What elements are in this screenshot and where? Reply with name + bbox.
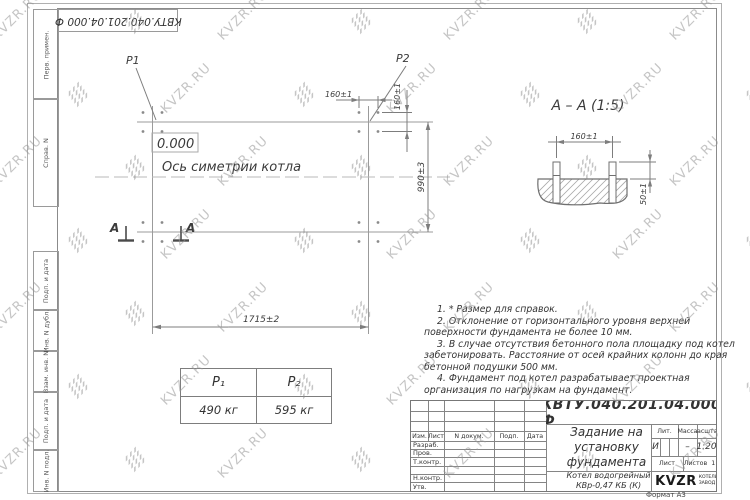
section-cut-marks [118, 226, 189, 241]
load-table-value-p2: 595 кг [256, 396, 331, 423]
note-1: 1. * Размер для справок. [424, 304, 746, 316]
massa-value: – [678, 438, 697, 456]
sheets-label: Листов [684, 460, 708, 467]
logo-subtitle-2: ЗАВОД РЭП [699, 481, 716, 487]
boiler-axis-label: Ось симетрии котла [162, 160, 301, 175]
dim-height-text: 990±3 [417, 162, 427, 193]
section-letter-1: А [109, 221, 119, 235]
section-letter-2: А [185, 221, 195, 235]
massa-label: Масса [678, 424, 697, 438]
note-2: 2. Отклонение от горизонтального уровня … [424, 316, 746, 339]
section-dim-protrusion-text: 50±1 [639, 183, 648, 205]
note-3: 3. В случае отсутствия бетонного пола пл… [424, 339, 746, 374]
row-razrab: Разраб. [411, 441, 446, 449]
technical-notes: 1. * Размер для справок. 2. Отклонение о… [424, 304, 746, 396]
col-izm: Изм. [411, 431, 428, 441]
dim-bolt-h-text: 160±1 [325, 90, 352, 99]
load-table-header-p2: P₂ [256, 369, 331, 396]
lit-label: Лит. [651, 424, 678, 438]
dimension-990: 990±3 [417, 122, 430, 232]
doc-number: КВТУ.040.201.04.000 Ф [546, 401, 716, 424]
section-dim-spacing-text: 160±1 [570, 132, 597, 141]
logo-text: KVZR [655, 474, 697, 489]
note-4: 4. Фундамент под котел разрабатывает про… [424, 373, 746, 396]
section-dimension-50 [619, 150, 656, 193]
sheets-cell: Листов 1 [683, 456, 716, 471]
row-empty [411, 466, 446, 474]
load-table-value-p1: 490 кг [181, 396, 256, 423]
load-table-header-p1: P₁ [181, 369, 256, 396]
format-note: Формат А3 [646, 491, 686, 499]
col-doc: N докум. [444, 431, 494, 441]
kvzr-logo-icon [651, 474, 653, 489]
anchor-bolt-left [553, 162, 560, 203]
sheets-value: 1 [711, 460, 715, 467]
p2-label: P2 [396, 52, 410, 65]
scale-label: Масштаб [697, 424, 716, 438]
col-list: Лист [428, 431, 444, 441]
level-mark: 0.000 [157, 137, 194, 152]
concrete-hatching [520, 170, 651, 210]
section-title: А – А (1:5) [551, 98, 625, 114]
dimension-1715: 1715±2 [153, 315, 369, 329]
anchor-bolt-right [609, 162, 616, 203]
load-point-leaders [136, 66, 406, 121]
title-block: Изм. Лист N докум. Подп. Дата Разраб. Пр… [410, 400, 717, 492]
row-utv: Утв. [411, 482, 446, 491]
dim-width-text: 1715±2 [243, 315, 279, 325]
sheet-label: Лист [651, 456, 683, 471]
col-podp: Подп. [494, 431, 524, 441]
load-table: P₁ P₂ 490 кг 595 кг [180, 368, 332, 424]
logo-cell: KVZR КОТЕЛЬНЫЙ ЗАВОД РЭП [651, 471, 716, 491]
row-nkontr: Н.контр. [411, 474, 446, 482]
row-prov: Пров. [411, 449, 446, 457]
section-view [520, 162, 651, 210]
foundation-plan [95, 106, 450, 334]
dim-bolt-v-text: 160±1 [393, 83, 402, 110]
col-data: Дата [524, 431, 546, 441]
p1-label: P1 [126, 54, 140, 67]
drawing-title: Задание на установку фундамента [546, 424, 667, 471]
scale-value: 1:20 [697, 438, 716, 456]
row-tkontr: Т.контр. [411, 457, 446, 466]
lit-value: И [651, 438, 660, 456]
